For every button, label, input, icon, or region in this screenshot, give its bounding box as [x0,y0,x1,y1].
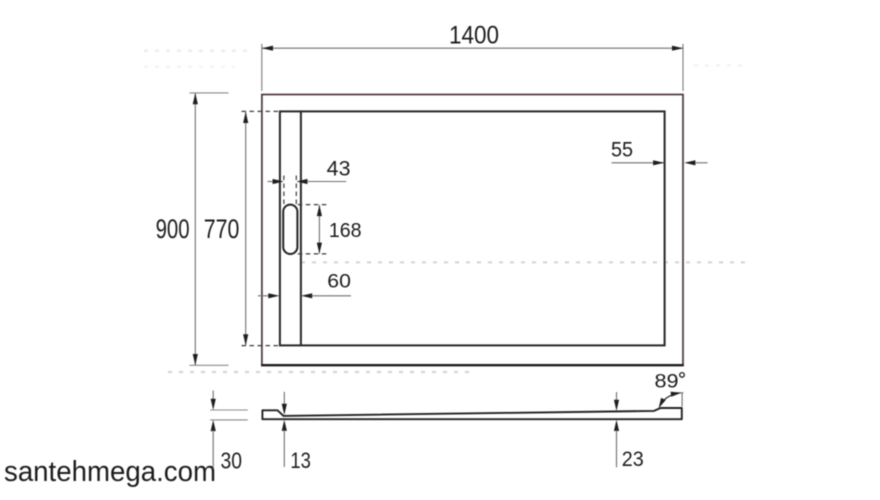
svg-text:30: 30 [221,448,243,474]
svg-text:santehmega.com: santehmega.com [4,456,216,488]
svg-text:13: 13 [290,448,311,473]
svg-text:55: 55 [611,137,633,161]
svg-text:1400: 1400 [449,22,499,50]
svg-text:770: 770 [204,214,240,244]
svg-text:168: 168 [329,220,362,242]
svg-text:89: 89 [655,372,679,393]
svg-text:60: 60 [327,270,351,292]
svg-text:900: 900 [156,214,190,244]
svg-text:23: 23 [622,448,644,471]
svg-text:43: 43 [327,158,351,181]
